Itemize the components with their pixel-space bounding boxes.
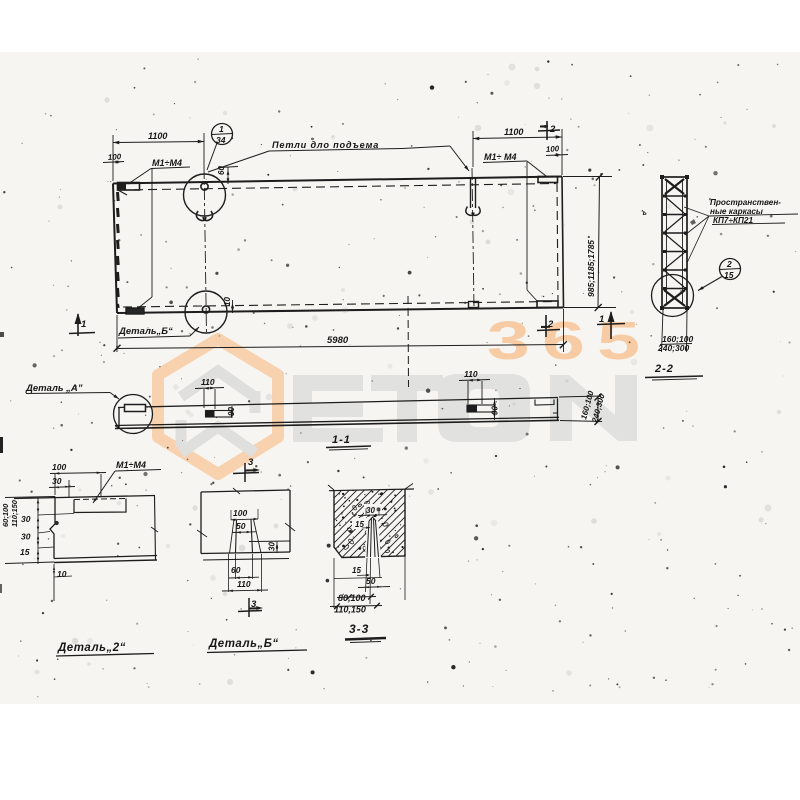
- svg-text:985;1185;1785: 985;1185;1785: [586, 240, 596, 297]
- svg-text:2: 2: [549, 124, 556, 135]
- svg-text:100: 100: [546, 144, 560, 154]
- svg-text:240;300: 240;300: [657, 343, 689, 353]
- svg-text:Петли дло подъема: Петли дло подъема: [272, 140, 379, 150]
- svg-text:10: 10: [223, 297, 232, 306]
- svg-text:110: 110: [201, 377, 215, 387]
- svg-text:1: 1: [599, 314, 604, 325]
- svg-text:100: 100: [233, 508, 247, 518]
- svg-text:2: 2: [547, 319, 554, 330]
- svg-text:30: 30: [21, 514, 31, 524]
- svg-text:365: 365: [487, 311, 652, 371]
- svg-text:50: 50: [366, 576, 376, 586]
- svg-text:60: 60: [231, 565, 241, 575]
- svg-text:15: 15: [352, 566, 361, 575]
- svg-text:1: 1: [219, 124, 224, 134]
- svg-text:110;150: 110;150: [10, 499, 19, 527]
- svg-text:М1÷ М4: М1÷ М4: [484, 152, 516, 162]
- svg-text:Деталь„Б“: Деталь„Б“: [208, 638, 279, 650]
- svg-text:3-3: 3-3: [349, 622, 369, 636]
- svg-text:1100: 1100: [148, 131, 167, 141]
- svg-text:90: 90: [227, 407, 236, 416]
- svg-text:3: 3: [248, 457, 254, 468]
- svg-text:М1÷М4: М1÷М4: [152, 158, 182, 168]
- svg-text:30: 30: [21, 532, 31, 542]
- svg-text:2-2: 2-2: [654, 363, 674, 375]
- svg-text:50: 50: [236, 521, 246, 531]
- svg-text:1-1: 1-1: [332, 434, 351, 446]
- svg-text:60;100: 60;100: [1, 503, 10, 527]
- svg-text:Деталь„Б“: Деталь„Б“: [118, 326, 173, 337]
- svg-text:60: 60: [217, 166, 226, 175]
- svg-text:5980: 5980: [327, 335, 349, 346]
- svg-text:100: 100: [108, 152, 122, 162]
- svg-text:1100: 1100: [504, 127, 523, 137]
- svg-text:10: 10: [57, 569, 67, 579]
- svg-text:3: 3: [251, 599, 257, 610]
- svg-text:15: 15: [724, 270, 734, 280]
- svg-text:30: 30: [52, 476, 62, 486]
- svg-text:34: 34: [216, 135, 226, 145]
- svg-text:Деталь„2“: Деталь„2“: [57, 642, 126, 654]
- svg-text:110: 110: [464, 369, 478, 379]
- svg-text:100: 100: [52, 462, 66, 472]
- svg-text:1: 1: [81, 319, 86, 330]
- svg-text:Пространствен-: Пространствен-: [710, 198, 781, 207]
- svg-text:Деталь „А”: Деталь „А”: [25, 383, 83, 394]
- svg-text:2: 2: [726, 259, 732, 269]
- svg-text:15: 15: [20, 547, 30, 557]
- svg-text:'ь: 'ь: [641, 210, 647, 217]
- svg-text:30: 30: [268, 542, 277, 551]
- svg-text:М1÷М4: М1÷М4: [116, 460, 146, 470]
- svg-text:110: 110: [237, 579, 251, 589]
- svg-text:90: 90: [491, 406, 500, 415]
- svg-text:30: 30: [366, 506, 375, 515]
